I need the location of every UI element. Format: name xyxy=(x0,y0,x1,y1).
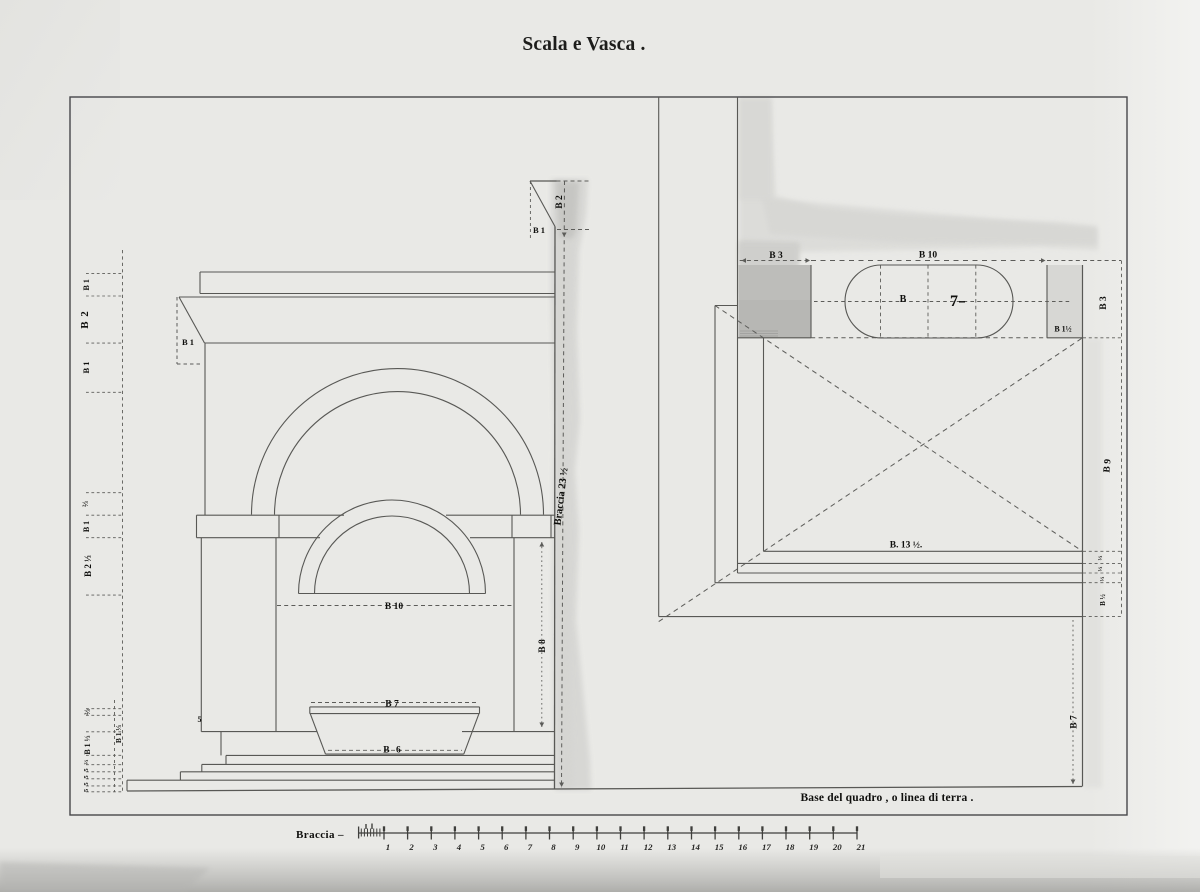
svg-text:B 2: B 2 xyxy=(79,310,91,329)
svg-text:18: 18 xyxy=(786,842,795,852)
svg-text:2: 2 xyxy=(408,842,414,852)
svg-text:B 1 ⅓: B 1 ⅓ xyxy=(83,735,92,754)
svg-text:12: 12 xyxy=(644,842,653,852)
svg-text:B 2 ⅓: B 2 ⅓ xyxy=(83,555,93,577)
svg-text:3: 3 xyxy=(432,842,438,852)
svg-text:14: 14 xyxy=(691,842,700,852)
svg-text:Base del quadro , o linea di t: Base del quadro , o linea di terra . xyxy=(800,792,973,804)
svg-text:13: 13 xyxy=(667,842,676,852)
svg-text:7: 7 xyxy=(950,293,958,310)
svg-text:5: 5 xyxy=(480,842,485,852)
svg-text:19: 19 xyxy=(809,842,818,852)
svg-text:B 3: B 3 xyxy=(1099,296,1109,310)
svg-text:17: 17 xyxy=(762,842,771,852)
svg-text:⅔: ⅔ xyxy=(83,709,92,715)
svg-text:1: 1 xyxy=(386,842,390,852)
svg-text:B 1: B 1 xyxy=(533,225,545,235)
svg-text:B 2: B 2 xyxy=(555,195,565,209)
svg-text:B 10: B 10 xyxy=(919,251,937,261)
svg-text:B 3: B 3 xyxy=(769,251,783,261)
svg-text:21: 21 xyxy=(856,842,866,852)
svg-text:10: 10 xyxy=(597,842,606,852)
svg-text:B ½: B ½ xyxy=(1099,594,1107,606)
svg-text:6: 6 xyxy=(504,842,509,852)
svg-text:B 1½: B 1½ xyxy=(1054,325,1071,334)
svg-text:B 1: B 1 xyxy=(82,521,91,532)
svg-text:B 6: B 6 xyxy=(383,746,402,756)
svg-text:8: 8 xyxy=(551,842,556,852)
svg-text:⅔: ⅔ xyxy=(83,759,90,764)
svg-text:B 1: B 1 xyxy=(82,279,91,290)
svg-text:20: 20 xyxy=(832,842,842,852)
svg-text:B: B xyxy=(900,294,907,305)
svg-text:9: 9 xyxy=(575,842,580,852)
svg-text:Braccia –: Braccia – xyxy=(296,829,344,841)
svg-text:Scala e Vasca .: Scala e Vasca . xyxy=(522,34,645,55)
svg-text:15: 15 xyxy=(715,842,724,852)
svg-text:B 10: B 10 xyxy=(385,602,403,612)
svg-text:B 1: B 1 xyxy=(182,337,194,347)
svg-text:5: 5 xyxy=(198,715,202,724)
svg-text:B 1: B 1 xyxy=(81,361,91,373)
svg-text:16: 16 xyxy=(738,842,747,852)
svg-text:B 1 ⅓: B 1 ⅓ xyxy=(114,725,123,744)
svg-text:11: 11 xyxy=(620,842,628,852)
svg-text:⅓: ⅓ xyxy=(1097,555,1104,560)
svg-text:7: 7 xyxy=(528,842,533,852)
svg-text:B 8: B 8 xyxy=(538,639,548,653)
svg-text:B 9: B 9 xyxy=(1102,458,1113,473)
svg-text:⅔: ⅔ xyxy=(81,501,90,507)
svg-text:⅓: ⅓ xyxy=(1097,566,1104,571)
svg-text:4: 4 xyxy=(456,842,462,852)
svg-text:B 7: B 7 xyxy=(1070,715,1080,729)
svg-text:B. 13 ½.: B. 13 ½. xyxy=(890,541,922,551)
svg-text:B 7: B 7 xyxy=(385,700,399,710)
svg-text:⅓: ⅓ xyxy=(1099,576,1106,581)
